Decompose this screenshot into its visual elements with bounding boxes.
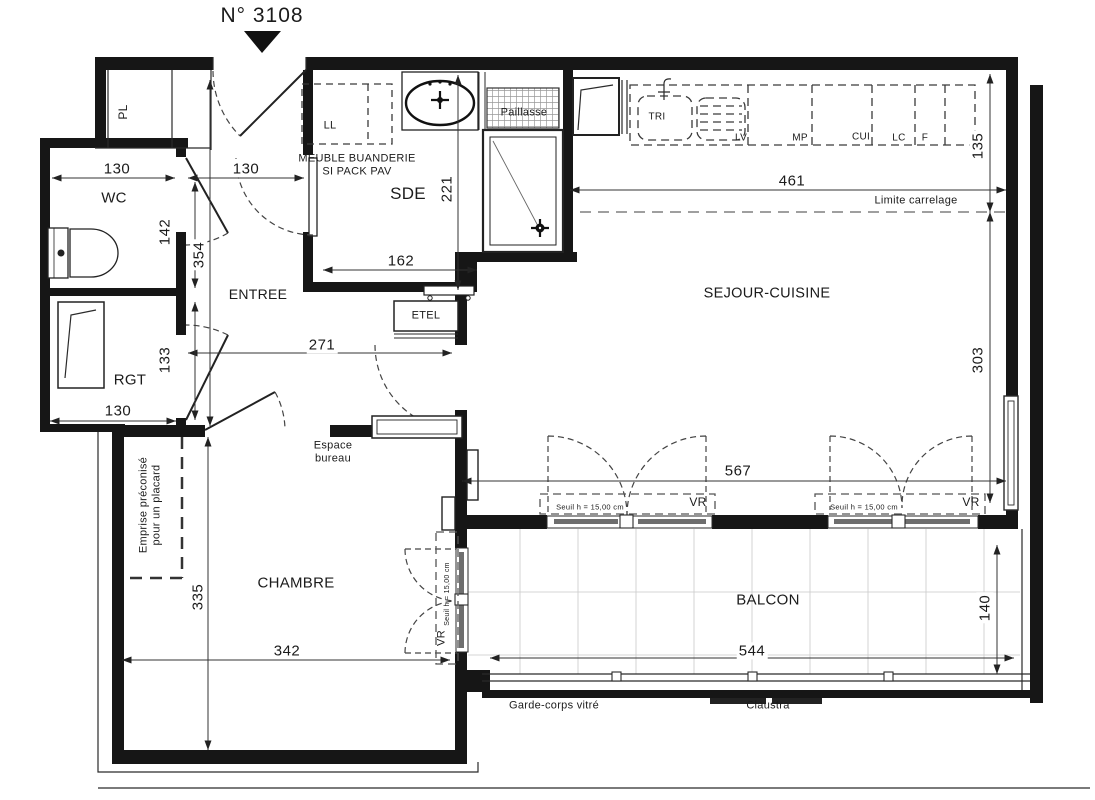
dim-wc-width: 130 xyxy=(102,160,133,177)
washer-reservation-box xyxy=(302,84,392,144)
label-mp: MP xyxy=(792,132,808,144)
dim-sejour-width: 567 xyxy=(723,462,754,479)
entrance-marker-triangle xyxy=(244,31,281,53)
dim-sde-depth: 221 xyxy=(438,174,455,205)
dim-balcon-width: 544 xyxy=(737,642,768,659)
dim-wc-depth: 142 xyxy=(156,217,173,248)
garde-corps-posts xyxy=(612,672,893,681)
plan-number: N° 3108 xyxy=(220,4,303,28)
label-vr-window-left: VR xyxy=(689,496,706,510)
label-ll: LL xyxy=(324,120,337,133)
label-lc: LC xyxy=(892,132,905,144)
room-label-entree: ENTREE xyxy=(229,286,288,302)
floor-plan-drawing xyxy=(0,0,1095,800)
label-seuil-left: Seuil h = 15,00 cm xyxy=(556,504,624,513)
room-label-balcon: BALCON xyxy=(736,591,800,608)
dim-rgt-width: 130 xyxy=(103,402,134,419)
label-vr-window-chambre: VR xyxy=(436,630,449,646)
dim-rgt-depth: 133 xyxy=(156,345,173,376)
label-claustra: Claustra xyxy=(746,700,789,713)
label-garde-corps: Garde-corps vitré xyxy=(509,700,599,713)
room-label-rgt: RGT xyxy=(114,371,147,388)
kitchen-faucet-icon xyxy=(658,79,671,100)
radiator-sde xyxy=(424,286,474,300)
technical-duct xyxy=(573,78,627,135)
label-tri: TRI xyxy=(648,111,665,123)
label-seuil-right: Seuil h = 15,00 cm xyxy=(830,504,898,513)
label-paillasse: Paillasse xyxy=(501,107,548,120)
rgt-panel xyxy=(58,302,104,388)
label-seuil-chambre: Seuil h = 15,00 cm xyxy=(444,562,452,626)
label-vr-window-right: VR xyxy=(962,496,979,510)
dim-entree-length: 354 xyxy=(190,240,207,271)
dim-entree-width: 271 xyxy=(307,336,338,353)
label-emprise-placard: Emprise préconisé pour un placard xyxy=(137,450,162,560)
desk-espace-bureau xyxy=(372,416,462,438)
dim-entree-door: 130 xyxy=(231,160,262,177)
floor-plan: N° 3108 PL WC ENTREE SDE RGT SEJOUR-CUIS… xyxy=(0,0,1095,800)
room-label-pl: PL xyxy=(117,104,131,119)
toilet-fixture xyxy=(48,228,118,278)
room-label-chambre: CHAMBRE xyxy=(257,574,334,591)
dim-cuisine-width: 461 xyxy=(777,172,808,189)
label-lv: LV xyxy=(735,132,747,144)
label-etel: ETEL xyxy=(412,310,441,323)
dim-sde-width: 162 xyxy=(386,252,417,269)
partition-lines xyxy=(479,72,485,130)
label-cui: CUI xyxy=(852,131,870,143)
label-espace-bureau: Espace bureau xyxy=(303,439,363,464)
dim-sejour-depth: 303 xyxy=(969,345,986,376)
label-f: F xyxy=(922,132,928,144)
label-meuble-buanderie: MEUBLE BUANDERIE SI PACK PAV xyxy=(297,152,417,177)
dim-balcon-depth: 140 xyxy=(976,593,993,624)
dim-chambre-width: 342 xyxy=(272,642,303,659)
washbasin-fixture xyxy=(402,72,478,130)
dim-chambre-depth: 335 xyxy=(189,582,206,613)
dim-cuisine-depth: 135 xyxy=(969,131,986,162)
label-limite-carrelage: Limite carrelage xyxy=(874,195,957,208)
shower-fixture xyxy=(483,130,563,252)
room-label-wc: WC xyxy=(101,189,127,206)
room-label-sde: SDE xyxy=(390,184,426,204)
room-label-sejour-cuisine: SEJOUR-CUISINE xyxy=(704,286,831,303)
